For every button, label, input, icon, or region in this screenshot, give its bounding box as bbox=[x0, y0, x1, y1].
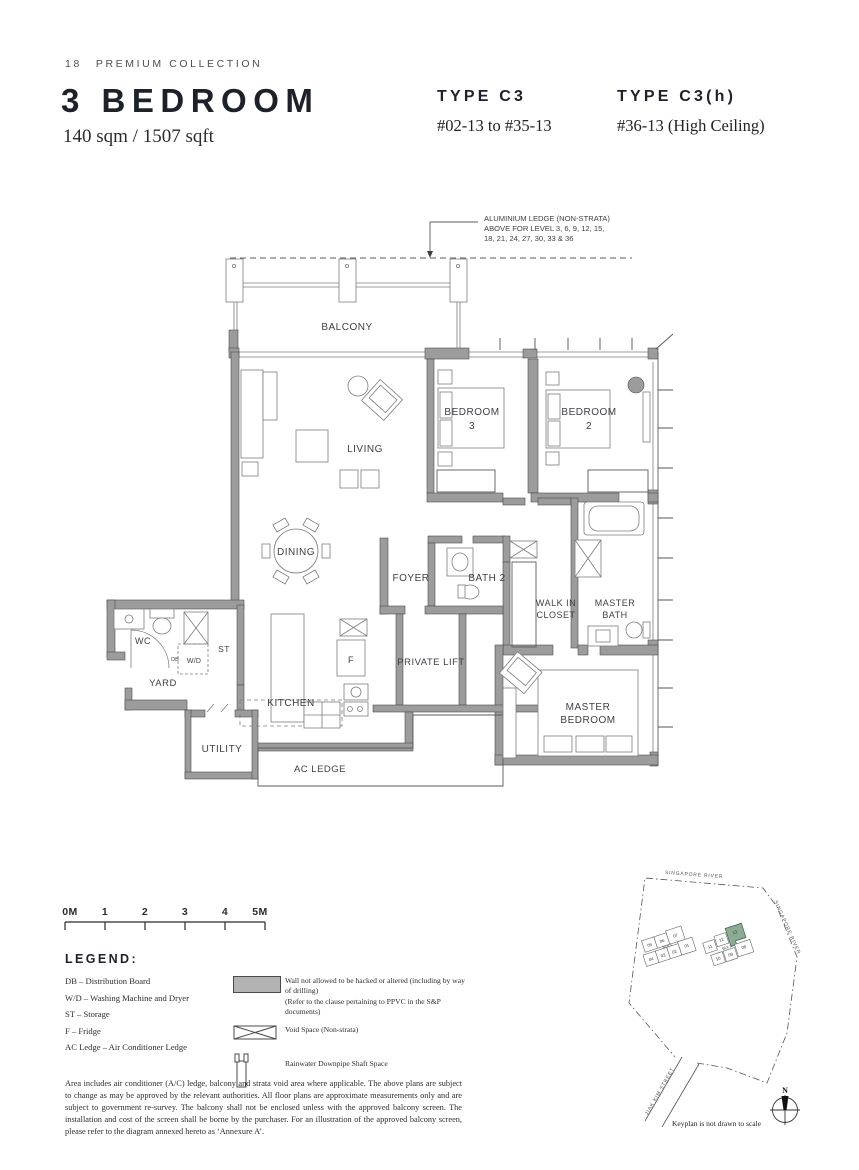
room-label-master-bedroom: MASTER bbox=[566, 702, 611, 713]
disclaimer-text: Area includes air conditioner (A/C) ledg… bbox=[65, 1078, 462, 1138]
river-label-right: SINGAPORE RIVER bbox=[772, 900, 801, 956]
room-label-fridge: F bbox=[348, 655, 354, 665]
breadcrumb: 18PREMIUM COLLECTION bbox=[65, 58, 262, 70]
room-label-balcony: BALCONY bbox=[321, 322, 372, 333]
bathtub bbox=[584, 502, 644, 535]
toilet bbox=[153, 618, 171, 634]
svg-text:5M: 5M bbox=[252, 906, 268, 918]
site-boundary bbox=[629, 878, 797, 1083]
room-label-st: ST bbox=[218, 644, 230, 654]
floorplan-page: 18PREMIUM COLLECTION 3 BEDROOM 140 sqm /… bbox=[0, 0, 859, 1170]
annotation-line2: ABOVE FOR LEVEL 3, 6, 9, 12, 15, bbox=[484, 224, 604, 233]
keyplan-blk1: 05 06 07 04 03 02 01 BLK 1 bbox=[638, 924, 696, 967]
room-label-bath2: BATH 2 bbox=[468, 573, 505, 584]
north-label: N bbox=[782, 1086, 788, 1095]
room-label-private-lift: PRIVATE LIFT bbox=[397, 657, 464, 668]
room-label-yard: YARD bbox=[149, 678, 177, 689]
void-space-symbol bbox=[575, 540, 601, 577]
room-label-foyer: FOYER bbox=[393, 573, 430, 584]
page-number: 18 bbox=[65, 58, 82, 70]
page-title: 3 BEDROOM bbox=[61, 82, 319, 120]
floor-plan: ALUMINIUM LEDGE (NON-STRATA) ABOVE FOR L… bbox=[60, 200, 700, 815]
void-space-symbol bbox=[340, 619, 367, 636]
svg-text:0M: 0M bbox=[62, 906, 78, 918]
keyplan-blk2: 11 12 13 10 09 08 BLK 2 bbox=[700, 922, 754, 967]
type-c3h-units: #36-13 (High Ceiling) bbox=[617, 116, 765, 136]
aluminium-ledge-annotation: ALUMINIUM LEDGE (NON-STRATA) ABOVE FOR L… bbox=[427, 214, 610, 258]
compass-icon: N bbox=[770, 1086, 800, 1125]
scale-bar: 0M 1 2 3 4 5M bbox=[60, 903, 272, 935]
river-label-top: SINGAPORE RIVER bbox=[665, 870, 724, 880]
svg-text:BATH: BATH bbox=[602, 610, 627, 620]
room-label-bedroom3: BEDROOM bbox=[444, 407, 499, 418]
walk-in-closet-shelves bbox=[512, 562, 536, 647]
type-c3-block: TYPE C3 #02-13 to #35-13 bbox=[437, 88, 552, 136]
void-space-symbol bbox=[233, 1025, 277, 1040]
room-label-kitchen: KITCHEN bbox=[267, 698, 314, 709]
bedroom3-wardrobe bbox=[437, 470, 495, 492]
svg-text:2: 2 bbox=[142, 906, 148, 918]
room-label-wc: WC bbox=[135, 636, 151, 646]
wall-no-hack-symbol bbox=[233, 976, 281, 993]
room-label-wd: W/D bbox=[187, 658, 201, 665]
unit-area: 140 sqm / 1507 sqft bbox=[63, 126, 214, 148]
type-c3-units: #02-13 to #35-13 bbox=[437, 116, 552, 136]
svg-text:4: 4 bbox=[222, 906, 228, 918]
svg-text:3: 3 bbox=[469, 421, 475, 432]
room-label-bedroom2: BEDROOM bbox=[561, 407, 616, 418]
room-label-master-bath: MASTER bbox=[595, 598, 636, 608]
svg-text:BEDROOM: BEDROOM bbox=[560, 715, 615, 726]
balcony: BALCONY bbox=[229, 302, 460, 352]
type-c3h-block: TYPE C3(h) #36-13 (High Ceiling) bbox=[617, 88, 765, 136]
type-c3h-name: TYPE C3(h) bbox=[617, 88, 765, 106]
bedroom2-wardrobe bbox=[588, 470, 648, 492]
street-label: JIAK KIM STREET bbox=[644, 1067, 676, 1117]
room-label-dining: DINING bbox=[277, 547, 315, 558]
ledge-dashed-line bbox=[226, 258, 632, 302]
legend-item: AC Ledge – Air Conditioner Ledge bbox=[65, 1042, 213, 1052]
svg-text:1: 1 bbox=[102, 906, 108, 918]
column bbox=[628, 377, 644, 393]
room-label-db: DB bbox=[171, 657, 179, 663]
legend-item: F – Fridge bbox=[65, 1026, 213, 1036]
legend-item: W/D – Washing Machine and Dryer bbox=[65, 993, 213, 1003]
svg-text:2: 2 bbox=[586, 421, 592, 432]
annotation-line1: ALUMINIUM LEDGE (NON-STRATA) bbox=[484, 214, 610, 223]
void-space-symbol bbox=[510, 541, 537, 558]
collection-label: PREMIUM COLLECTION bbox=[96, 58, 262, 70]
legend-item: DB – Distribution Board bbox=[65, 976, 213, 986]
keyplan: SINGAPORE RIVER SINGAPORE RIVER JIAK KIM… bbox=[620, 858, 859, 1165]
toilet bbox=[626, 622, 642, 638]
arrow-down-icon bbox=[427, 251, 433, 258]
annotation-line3: 18, 21, 24, 27, 30, 33 & 36 bbox=[484, 234, 574, 243]
room-label-ac-ledge: AC LEDGE bbox=[294, 764, 346, 775]
legend-item: ST – Storage bbox=[65, 1009, 213, 1019]
void-space-symbol bbox=[184, 612, 208, 644]
void-space-symbols bbox=[184, 540, 601, 644]
svg-text:CLOSET: CLOSET bbox=[536, 610, 575, 620]
svg-text:3: 3 bbox=[182, 906, 188, 918]
legend-title: LEGEND: bbox=[65, 952, 470, 966]
type-c3-name: TYPE C3 bbox=[437, 88, 552, 106]
room-label-walk-in-closet: WALK IN bbox=[536, 598, 576, 608]
room-label-utility: UTILITY bbox=[202, 744, 243, 755]
room-label-living: LIVING bbox=[347, 444, 383, 455]
keyplan-note: Keyplan is not drawn to scale bbox=[672, 1119, 762, 1128]
